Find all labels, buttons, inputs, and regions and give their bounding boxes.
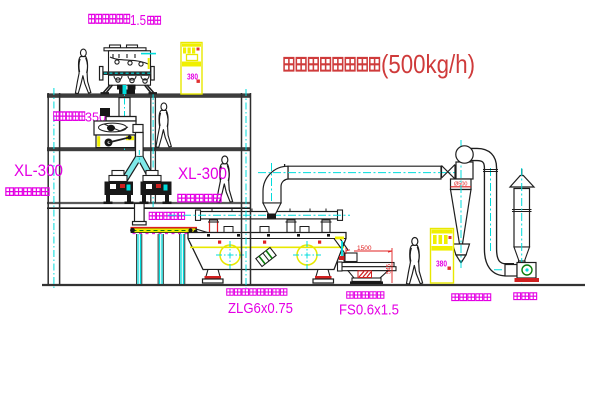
svg-text:(500kg/h): (500kg/h) — [381, 49, 475, 79]
svg-text:545: 545 — [387, 263, 393, 274]
svg-text:380: 380 — [436, 260, 447, 269]
svg-text:1500: 1500 — [357, 245, 372, 252]
svg-text:ZLG6x0.75: ZLG6x0.75 — [228, 300, 293, 317]
svg-text:FS0.6x1.5: FS0.6x1.5 — [339, 302, 399, 319]
svg-text:XL-300: XL-300 — [178, 164, 227, 183]
svg-text:XL-300: XL-300 — [14, 161, 63, 180]
svg-text:1.5: 1.5 — [130, 12, 146, 29]
